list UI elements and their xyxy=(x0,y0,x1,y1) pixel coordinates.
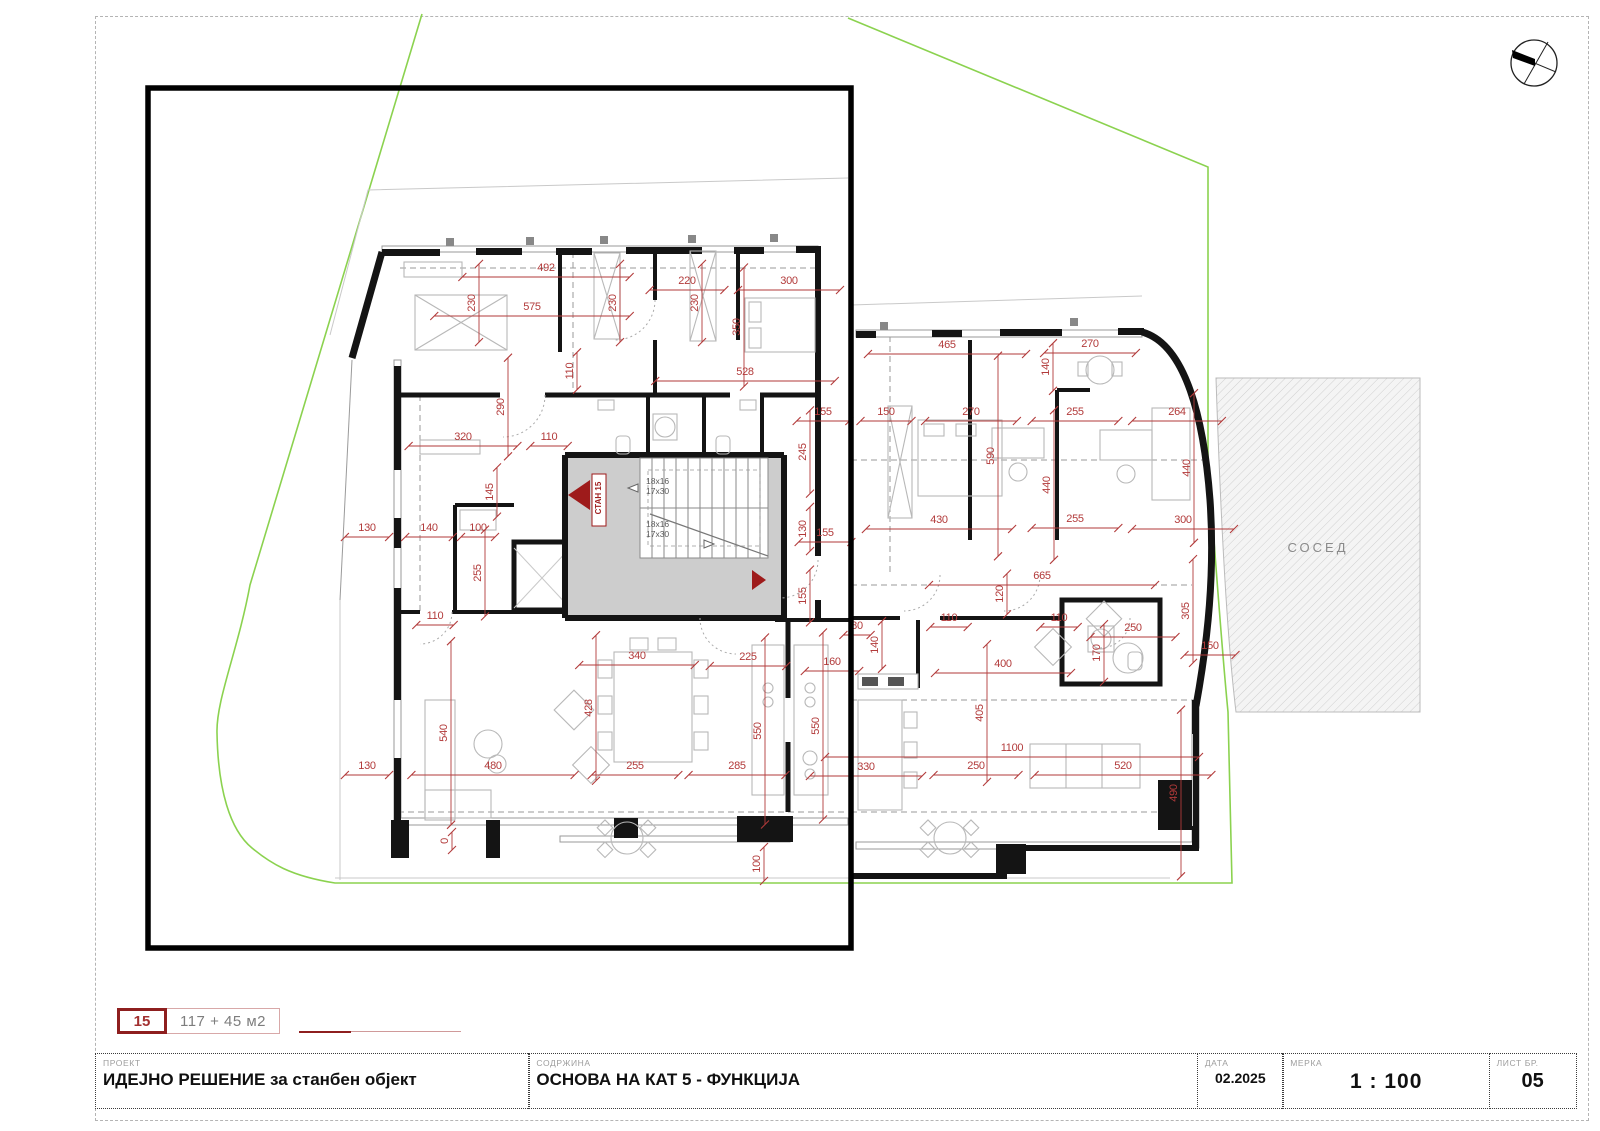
dimension-label: 270 xyxy=(1081,338,1099,350)
dimension-label: 230 xyxy=(466,294,478,312)
dimension-label: 300 xyxy=(780,275,798,287)
sheet-no-label: ЛИСТ БР. xyxy=(1490,1054,1576,1068)
dimension-label: 440 xyxy=(1041,476,1053,494)
scale-value: 1 : 100 xyxy=(1283,1068,1489,1094)
stair-tread-label-2: 17x30 xyxy=(646,529,669,539)
dimension-label: 255 xyxy=(472,564,484,582)
dimension-label: 130 xyxy=(358,760,376,772)
date-label: ДАТА xyxy=(1198,1054,1283,1068)
dimension-label: 320 xyxy=(454,431,472,443)
drawing-sheet: { "sheet": { "legend": { "unit_number": … xyxy=(0,0,1600,1131)
dimension-label: 140 xyxy=(420,522,438,534)
dimension-label: 305 xyxy=(1180,602,1192,620)
dimension-label: 250 xyxy=(967,760,985,772)
dimension-label: 0 xyxy=(439,838,451,844)
dimension-label: 120 xyxy=(994,585,1006,603)
title-block-scale-cell: МЕРКА 1 : 100 xyxy=(1282,1053,1490,1109)
dimension-label: 550 xyxy=(752,722,764,740)
dimension-label: 110 xyxy=(564,363,576,380)
title-block-content-cell: СОДРЖИНА ОСНОВА НА КАТ 5 - ФУНКЦИЈА xyxy=(528,1053,1198,1109)
legend-underline-dark xyxy=(299,1031,351,1033)
neighbor-label: СОСЕД xyxy=(1287,540,1348,555)
dimension-label: 665 xyxy=(1033,570,1051,582)
dimension-label: 465 xyxy=(938,339,956,351)
dimension-label: 440 xyxy=(1181,459,1193,477)
project-label: ПРОЕКТ xyxy=(96,1054,529,1068)
dimension-label: 520 xyxy=(1114,760,1132,772)
stair-rise-label-1: 18x16 xyxy=(646,476,669,486)
dimension-label: 528 xyxy=(736,366,754,378)
dimension-label: 100 xyxy=(469,522,487,534)
dimension-label: 490 xyxy=(1168,784,1180,802)
dimension-label: 230 xyxy=(689,294,701,312)
title-block-sheet-no-cell: ЛИСТ БР. 05 xyxy=(1489,1053,1577,1109)
dimension-label: 110 xyxy=(541,431,558,443)
legend-unit-number: 15 xyxy=(117,1008,167,1034)
dimension-label: 350 xyxy=(731,318,743,336)
dimension-label: 145 xyxy=(484,483,496,501)
legend-underline-light xyxy=(351,1031,461,1032)
sheet-no-value: 05 xyxy=(1490,1068,1576,1093)
dimension-label: 1100 xyxy=(1001,742,1024,754)
title-block-project-cell: ПРОЕКТ ИДЕЈНО РЕШЕНИЕ за станбен објект xyxy=(95,1053,530,1109)
dimension-label: 264 xyxy=(1168,406,1186,418)
dimension-label: 140 xyxy=(1040,358,1052,376)
dimension-label: 492 xyxy=(537,262,555,274)
dimension-label: 575 xyxy=(523,301,541,313)
dimension-label: 255 xyxy=(626,760,644,772)
dimension-label: 155 xyxy=(797,587,809,605)
dimension-label: 250 xyxy=(1124,622,1142,634)
dimension-label: 290 xyxy=(495,398,507,416)
dimension-label: 330 xyxy=(857,761,875,773)
dimension-label: 430 xyxy=(930,514,948,526)
dimension-label: 428 xyxy=(583,699,595,717)
dimension-label: 150 xyxy=(877,406,895,418)
dimension-label: 130 xyxy=(358,522,376,534)
dimension-label: 480 xyxy=(484,760,502,772)
dimension-label: 285 xyxy=(728,760,746,772)
stair-rise-label-2: 18x16 xyxy=(646,519,669,529)
scale-label: МЕРКА xyxy=(1283,1054,1489,1068)
dimension-label: 405 xyxy=(974,704,986,722)
dimension-label: 255 xyxy=(1066,513,1084,525)
dimension-label: 225 xyxy=(739,651,757,663)
dimension-label: 155 xyxy=(814,406,832,418)
dimension-label: 100 xyxy=(751,855,763,873)
content-label: СОДРЖИНА xyxy=(529,1054,1197,1068)
dimension-label: 245 xyxy=(797,443,809,461)
dimension-label: 160 xyxy=(823,656,841,668)
dimension-label: 155 xyxy=(816,527,834,539)
furniture xyxy=(404,251,1190,857)
date-value: 02.2025 xyxy=(1198,1068,1283,1086)
dimension-label: 140 xyxy=(869,636,881,654)
north-arrow-icon xyxy=(1511,40,1557,86)
stair-tread-label-1: 17x30 xyxy=(646,486,669,496)
dimension-label: 400 xyxy=(994,658,1012,670)
unit-marker-label: СТАН 15 xyxy=(594,481,603,514)
content-value: ОСНОВА НА КАТ 5 - ФУНКЦИЈА xyxy=(529,1068,1197,1090)
dimension-label: 340 xyxy=(628,650,646,662)
legend-unit-area: 117 + 45 м2 xyxy=(167,1008,280,1034)
dimension-label: 255 xyxy=(1066,406,1084,418)
dimension-label: 540 xyxy=(438,724,450,742)
dimension-label: 130 xyxy=(797,520,809,538)
dimension-label: 220 xyxy=(678,275,696,287)
neighbor-parcel: СОСЕД xyxy=(1216,378,1420,712)
dimension-label: 230 xyxy=(607,294,619,312)
dimension-label: 170 xyxy=(1091,644,1103,662)
dimension-label: 110 xyxy=(941,612,958,624)
dimension-label: 300 xyxy=(1174,514,1192,526)
project-value: ИДЕЈНО РЕШЕНИЕ за станбен објект xyxy=(96,1068,529,1090)
unit-legend: 15 117 + 45 м2 xyxy=(117,1008,280,1034)
parcel-boundary xyxy=(217,14,1232,883)
floor-plan: СОСЕД xyxy=(0,0,1600,1131)
dimension-label: 270 xyxy=(962,406,980,418)
dimension-label: 590 xyxy=(985,447,997,465)
dimension-label: 110 xyxy=(427,610,444,622)
dimension-label: 150 xyxy=(1201,640,1219,652)
dimension-label: 110 xyxy=(1051,612,1068,624)
dimension-label: 550 xyxy=(810,717,822,735)
title-block: ПРОЕКТ ИДЕЈНО РЕШЕНИЕ за станбен објект … xyxy=(95,1053,1580,1109)
title-block-date-cell: ДАТА 02.2025 xyxy=(1197,1053,1284,1109)
